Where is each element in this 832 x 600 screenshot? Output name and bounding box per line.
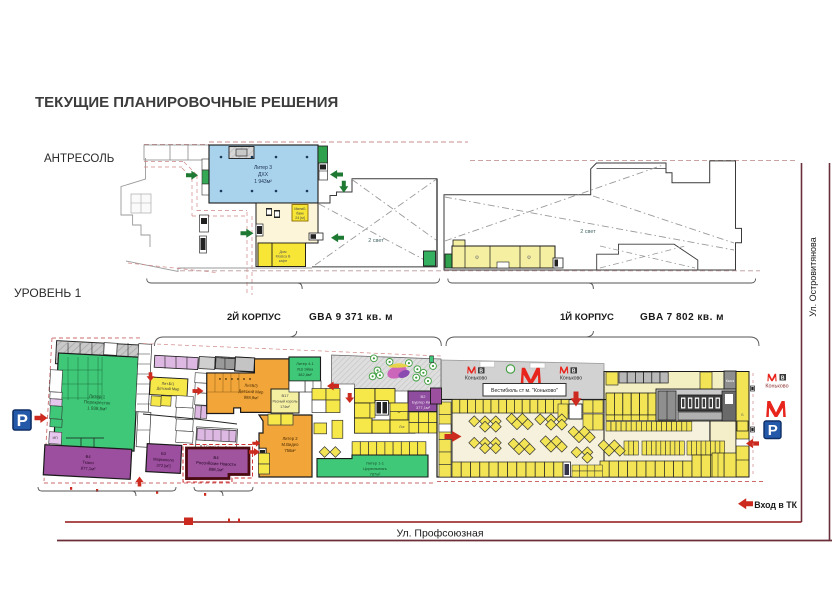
svg-text:898,1м²: 898,1м² bbox=[209, 467, 225, 473]
svg-text:372 [м²]: 372 [м²] bbox=[156, 463, 170, 469]
svg-text:988,9м²: 988,9м² bbox=[244, 395, 260, 401]
svg-text:Ул. Островитянова: Ул. Островитянова bbox=[808, 237, 818, 316]
svg-text:В17: В17 bbox=[281, 393, 289, 398]
svg-text:АНТРЕСОЛЬ: АНТРЕСОЛЬ bbox=[44, 153, 114, 165]
svg-text:УРОВЕНЬ 1: УРОВЕНЬ 1 bbox=[14, 286, 82, 300]
svg-text:787м²: 787м² bbox=[370, 472, 381, 477]
svg-text:банк: банк bbox=[296, 212, 304, 216]
svg-text:В4: В4 bbox=[213, 455, 219, 460]
svg-text:кафе: кафе bbox=[279, 259, 288, 263]
svg-text:2 свет: 2 свет bbox=[368, 238, 384, 244]
svg-text:Вход в ТК: Вход в ТК bbox=[754, 500, 797, 510]
svg-text:Коньково: Коньково bbox=[765, 384, 788, 390]
svg-text:Кьоск: Кьоск bbox=[726, 379, 735, 383]
svg-text:756м²: 756м² bbox=[284, 448, 296, 453]
svg-text:Música В: Música В bbox=[276, 255, 291, 259]
svg-text:2Й КОРПУС: 2Й КОРПУС bbox=[227, 311, 281, 323]
svg-text:377,1м²: 377,1м² bbox=[416, 405, 431, 410]
svg-text:ЛитВ/3: ЛитВ/3 bbox=[244, 383, 258, 389]
svg-text:ТЕКУЩИЕ ПЛАНИРОВОЧНЫЕ РЕШЕНИЯ: ТЕКУЩИЕ ПЛАНИРОВОЧНЫЕ РЕШЕНИЯ bbox=[35, 94, 338, 111]
svg-text:Литер 1: Литер 1 bbox=[89, 394, 106, 400]
svg-text:В: В bbox=[572, 368, 576, 374]
svg-text:1 938,5м²: 1 938,5м² bbox=[87, 405, 107, 411]
svg-text:GBA 7 802 кв. м: GBA 7 802 кв. м bbox=[640, 312, 724, 323]
svg-text:⚙: ⚙ bbox=[527, 255, 532, 261]
svg-text:В: В bbox=[479, 368, 483, 374]
svg-text:Литер 3: Литер 3 bbox=[254, 165, 272, 171]
svg-text:Цирюльникъ: Цирюльникъ bbox=[363, 466, 387, 471]
svg-text:⚙: ⚙ bbox=[475, 255, 480, 261]
svg-text:1Й КОРПУС: 1Й КОРПУС bbox=[560, 311, 614, 323]
svg-text:174м²: 174м² bbox=[280, 405, 290, 409]
svg-text:МиниБ: МиниБ bbox=[294, 207, 306, 211]
svg-text:Ткани: Ткани bbox=[82, 460, 94, 466]
svg-text:P: P bbox=[17, 411, 28, 430]
svg-text:Ресный король: Ресный король bbox=[272, 400, 297, 404]
svg-text:В: В bbox=[781, 375, 785, 381]
svg-text:Коньково: Коньково bbox=[560, 376, 582, 382]
svg-text:P: P bbox=[768, 422, 778, 439]
svg-text:Коньково: Коньково bbox=[465, 376, 487, 382]
svg-text:ЛШ Эйва: ЛШ Эйва bbox=[297, 367, 314, 372]
svg-text:877,1м²: 877,1м² bbox=[81, 466, 97, 472]
svg-text:Литер 2: Литер 2 bbox=[282, 436, 298, 441]
svg-text:М.Видео: М.Видео bbox=[282, 442, 300, 447]
svg-text:В2: В2 bbox=[421, 394, 427, 399]
svg-text:Лит.Б/1: Лит.Б/1 bbox=[162, 382, 175, 387]
svg-text:Литер 4-1: Литер 4-1 bbox=[296, 361, 314, 366]
svg-text:Вестибюль ст м. "Коньково": Вестибюль ст м. "Коньково" bbox=[491, 388, 558, 394]
svg-text:GBA 9 371 кв. м: GBA 9 371 кв. м bbox=[309, 312, 393, 323]
svg-text:ИП: ИП bbox=[52, 436, 58, 440]
svg-text:382,8м²: 382,8м² bbox=[298, 372, 312, 377]
svg-text:2 свет: 2 свет bbox=[580, 229, 596, 235]
svg-text:1 943м²: 1 943м² bbox=[254, 179, 272, 185]
svg-text:Лог: Лог bbox=[399, 425, 405, 429]
svg-text:24 [м]: 24 [м] bbox=[295, 216, 304, 220]
svg-text:Дом: Дом bbox=[280, 250, 287, 254]
svg-text:Литер 1-1: Литер 1-1 bbox=[366, 461, 385, 466]
svg-text:Ул. Профсоюзная: Ул. Профсоюзная bbox=[396, 528, 483, 540]
svg-text:ДХХ: ДХХ bbox=[258, 172, 269, 178]
svg-text:В4: В4 bbox=[85, 454, 91, 459]
